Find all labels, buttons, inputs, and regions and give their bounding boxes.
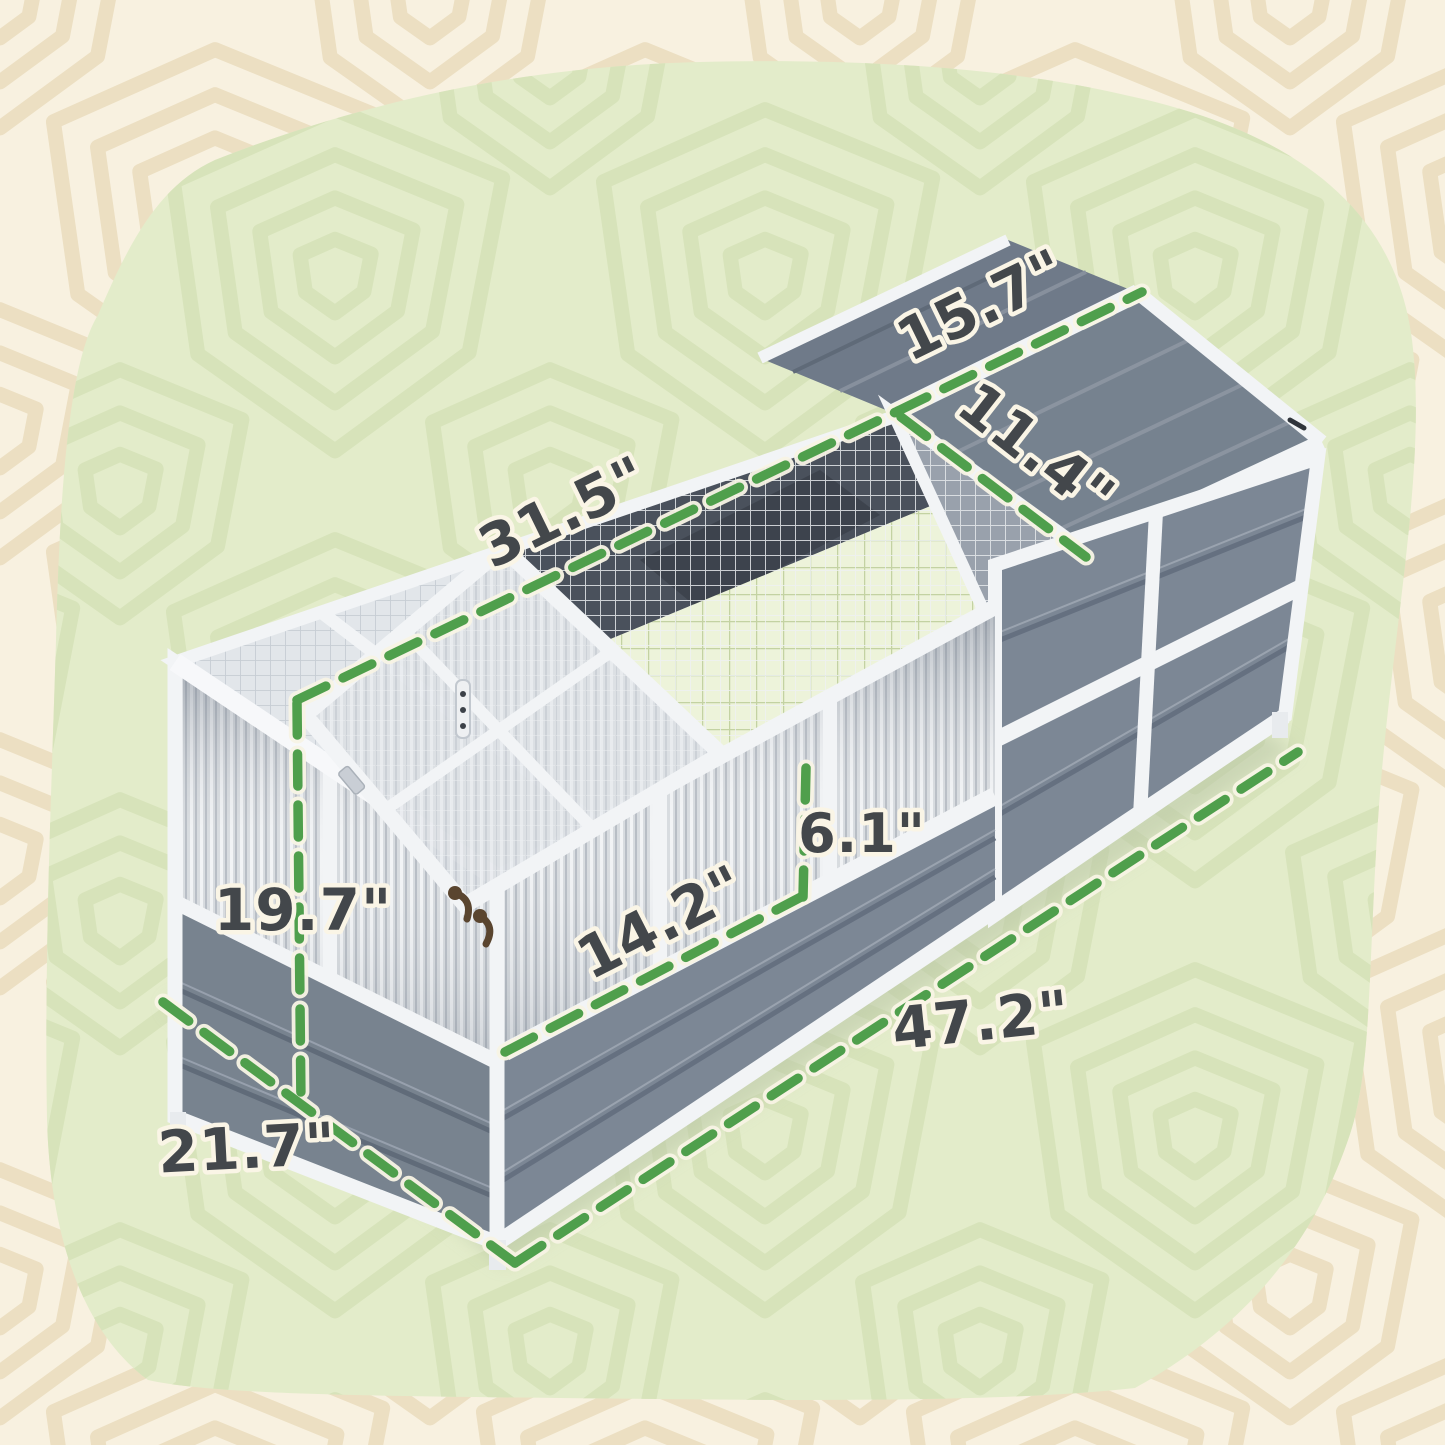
dim-label-depth: 21.7"	[156, 1109, 338, 1186]
dim-label-panel-height: 6.1"	[798, 802, 926, 865]
diagram-canvas: 31.5" 15.7" 11.4" 6.1" 14.2" 19.7" 47.2"…	[0, 0, 1445, 1445]
product-dimension-image: 31.5" 15.7" 11.4" 6.1" 14.2" 19.7" 47.2"…	[0, 0, 1445, 1445]
lid-stay-bar	[456, 680, 470, 738]
foot	[1272, 712, 1288, 738]
dim-label-height: 19.7"	[214, 876, 392, 944]
